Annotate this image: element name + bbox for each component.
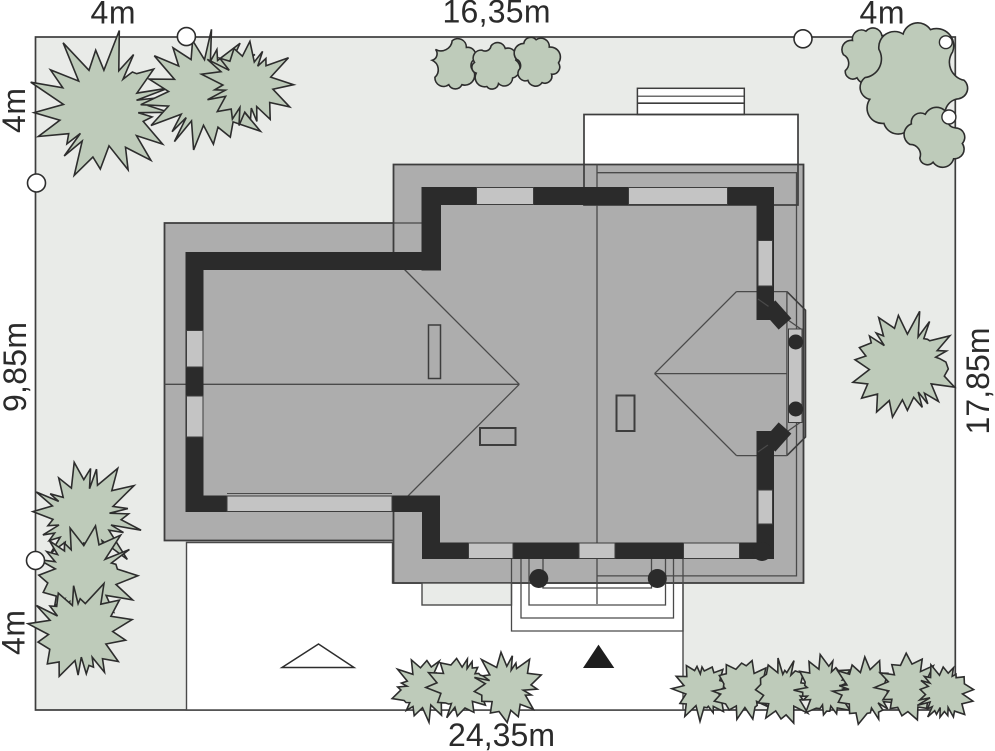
svg-text:4m: 4m bbox=[91, 0, 136, 31]
svg-text:4m: 4m bbox=[0, 610, 32, 655]
svg-text:4m: 4m bbox=[0, 88, 32, 133]
svg-text:17,85m: 17,85m bbox=[960, 328, 995, 435]
svg-text:9,85m: 9,85m bbox=[0, 322, 33, 412]
svg-text:16,35m: 16,35m bbox=[443, 0, 551, 30]
svg-text:4m: 4m bbox=[860, 0, 905, 31]
svg-text:24,35m: 24,35m bbox=[448, 717, 555, 751]
